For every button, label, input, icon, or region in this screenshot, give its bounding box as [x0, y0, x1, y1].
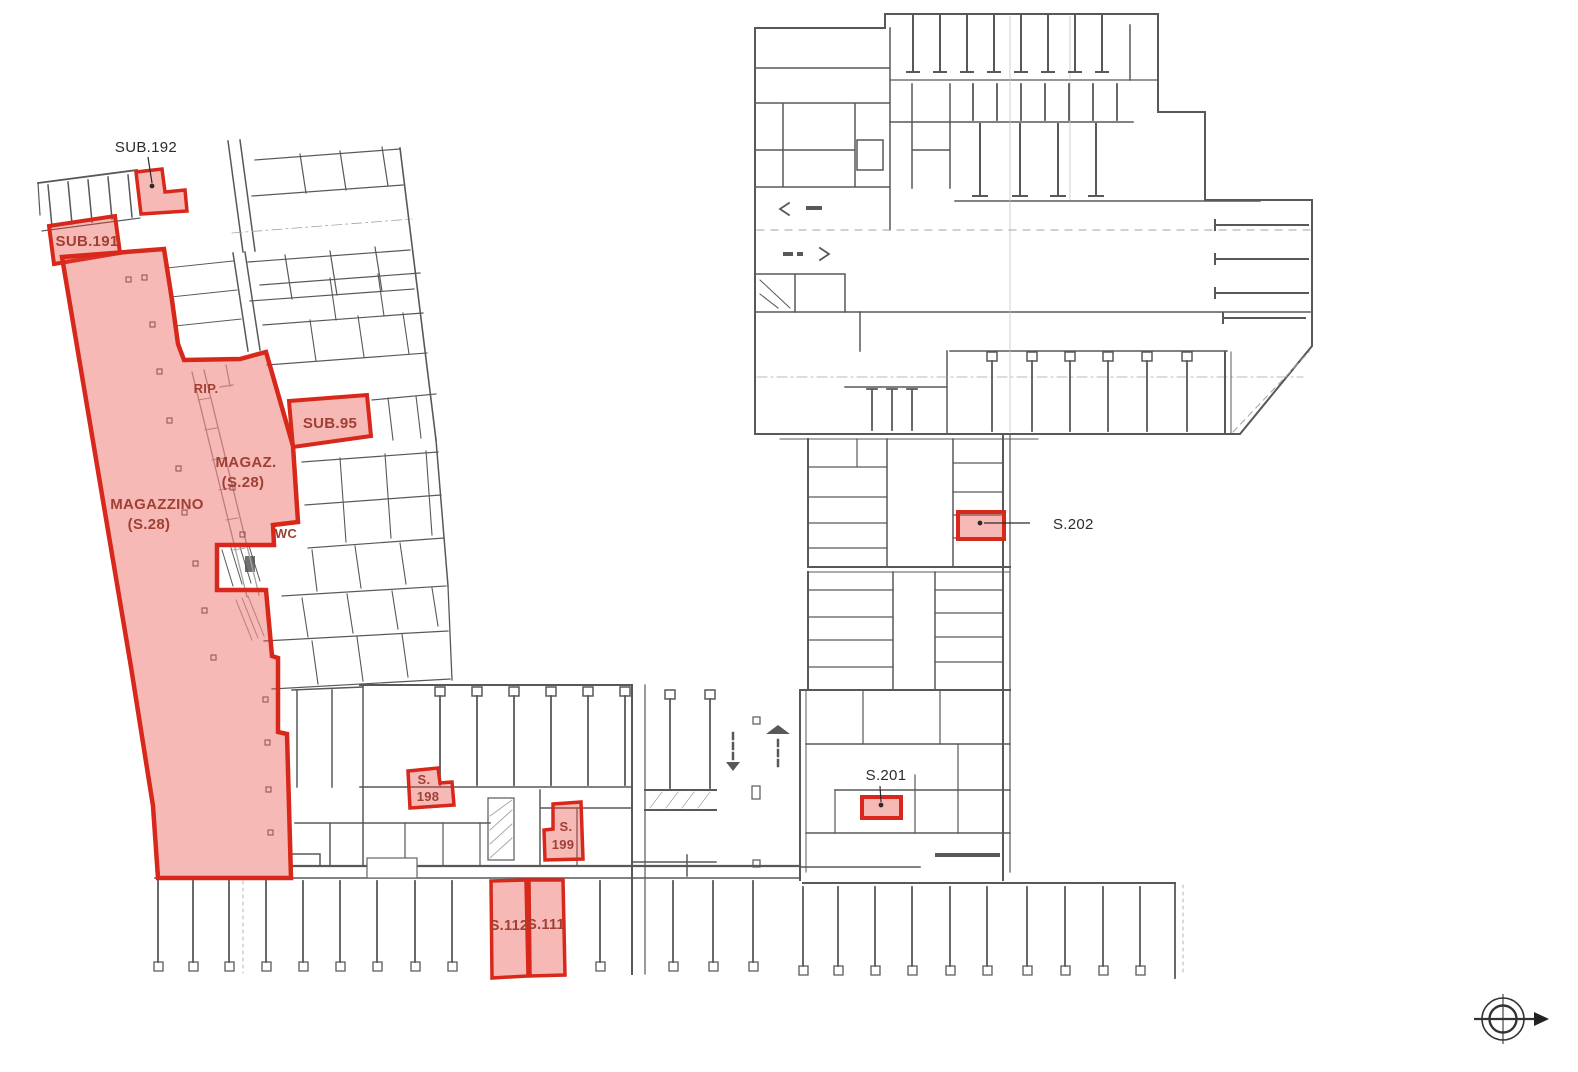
label-magaz-line1: MAGAZ.: [216, 454, 277, 471]
cellar-section-walls: [780, 434, 1038, 880]
label-s201: S.201: [866, 767, 907, 784]
bottom-parking-stalls-left: [154, 881, 457, 973]
label-s198-line2: 198: [417, 789, 440, 804]
label-s199-line2: 199: [552, 837, 575, 852]
garage-parking-bars-right: [1215, 220, 1308, 323]
label-wc: WC: [275, 526, 298, 541]
highlighted-units: [49, 169, 1004, 978]
label-magaz-line2: (S.28): [222, 474, 265, 491]
driveway-arrows: [726, 717, 790, 867]
cellar-rooms-upper: [808, 439, 1003, 567]
stairwell-hatch: [222, 546, 260, 586]
wall-opening: [367, 858, 417, 878]
label-sub191: SUB.191: [56, 233, 119, 250]
cellar-rooms-lower: [808, 572, 1003, 690]
garage-rooms-left: [755, 28, 950, 434]
label-sub192: SUB.192: [115, 139, 177, 156]
label-magazzino-line1: MAGAZZINO: [110, 496, 204, 513]
bottom-strip-rooms: [363, 790, 632, 866]
label-s112: S.112: [490, 918, 529, 934]
left-wing-south-rooms: [264, 586, 452, 689]
bottom-strip-walls: [155, 685, 1183, 978]
bottom-parking-stalls-center: [596, 881, 758, 971]
bottom-strip-stalls-upper: [435, 687, 630, 785]
label-magazzino-line2: (S.28): [128, 516, 171, 533]
label-s202: S.202: [1053, 516, 1094, 533]
label-s198-line1: S.: [418, 772, 431, 787]
left-wing-wc-east-rooms: [282, 440, 448, 596]
label-s111: S.111: [527, 917, 565, 933]
north-compass-icon: [1474, 994, 1549, 1044]
label-sub95: SUB.95: [303, 415, 357, 432]
unit-s201-highlight: [862, 797, 901, 818]
bottom-parking-stalls-right: [799, 887, 1145, 975]
unit-sub192-highlight: [136, 169, 187, 214]
garage-parking-stalls-lower: [987, 352, 1231, 433]
label-s199-line1: S.: [560, 819, 573, 834]
unit-s202-highlight: [958, 512, 1004, 539]
floor-plan-page: SUB.192 SUB.191 MAGAZZINO (S.28) MAGAZ. …: [0, 0, 1578, 1072]
garage-parking-stalls-top: [907, 16, 1117, 196]
label-rip: RIP.: [194, 381, 219, 396]
floor-plan-drawing: SUB.192 SUB.191 MAGAZZINO (S.28) MAGAZ. …: [0, 0, 1578, 1072]
unit-magazzino-highlight: [62, 249, 298, 878]
